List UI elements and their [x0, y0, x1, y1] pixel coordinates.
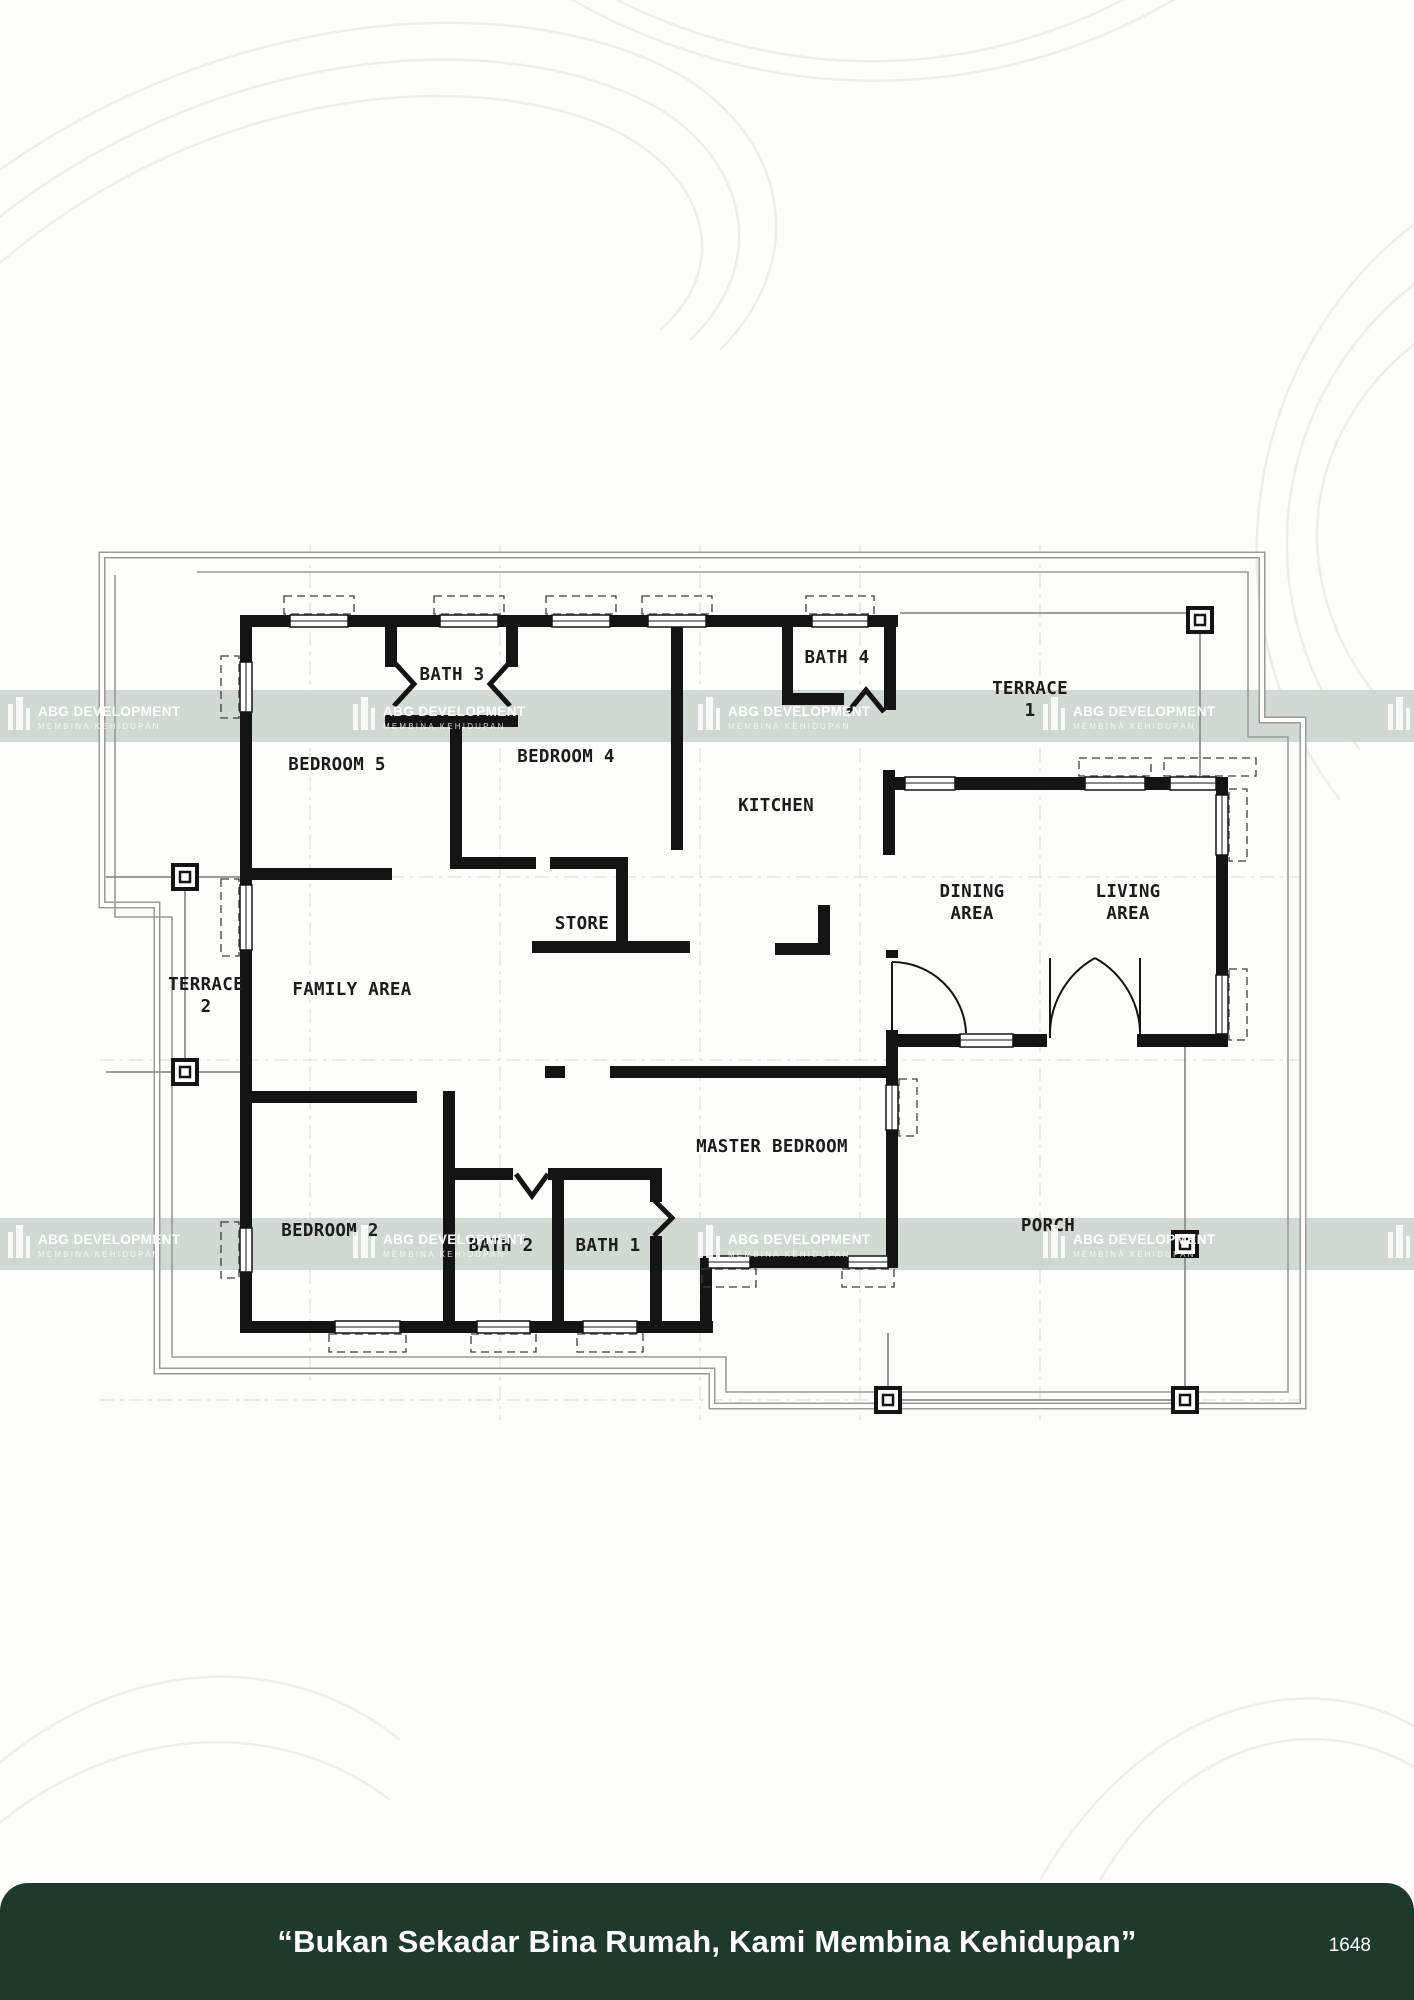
watermark-title: ABG DEVELOPMENT	[383, 704, 526, 719]
window-top-2	[440, 615, 498, 627]
room-label-bath-3: BATH 3	[419, 665, 484, 685]
watermark-subtitle: MEMBINA KEHIDUPAN	[383, 1250, 506, 1259]
watermark-title: ABG DEVELOPMENT	[38, 1232, 181, 1247]
column-terrace2-bottom	[173, 1060, 197, 1084]
window-bottom-1	[335, 1321, 400, 1333]
room-label-bedroom-4: BEDROOM 4	[517, 747, 615, 767]
footer-quote-bar: “Bukan Sekadar Bina Rumah, Kami Membina …	[0, 1883, 1414, 2000]
window-bottom-2	[477, 1321, 530, 1333]
room-label-bedroom-5: BEDROOM 5	[288, 755, 386, 775]
window-living-east-1	[1216, 795, 1228, 855]
door-master-bedroom	[892, 962, 966, 1033]
watermark-title: ABG DEVELOPMENT	[728, 704, 871, 719]
room-label-terrace-1: TERRACE	[992, 679, 1068, 699]
watermark-subtitle: MEMBINA KEHIDUPAN	[38, 722, 161, 731]
window-bottom-3	[583, 1321, 637, 1333]
floor-plan-drawing: BATH 3 BATH 4 TERRACE 1 BEDROOM 5 BEDROO…	[0, 0, 1414, 2000]
room-label-living: LIVING	[1095, 882, 1160, 902]
door-main-entrance	[1050, 958, 1140, 1038]
room-label-dining-2: AREA	[950, 904, 994, 924]
room-label-bath-4: BATH 4	[804, 648, 869, 668]
window-dining-north-2	[1085, 777, 1145, 790]
watermark-title: ABG DEVELOPMENT	[38, 704, 181, 719]
footer-page-code: 1648	[1329, 1935, 1371, 1957]
column-terrace1	[1188, 608, 1212, 632]
window-living-east-2	[1216, 975, 1228, 1034]
window-top-3	[552, 615, 610, 627]
window-left-3	[240, 1228, 252, 1272]
room-label-kitchen: KITCHEN	[738, 796, 814, 816]
window-left-2	[240, 885, 252, 950]
window-master-south-2	[848, 1256, 888, 1268]
footer-quote-text: “Bukan Sekadar Bina Rumah, Kami Membina …	[277, 1924, 1136, 1960]
room-label-terrace-2-num: 2	[201, 997, 212, 1017]
room-label-family-area: FAMILY AREA	[292, 980, 411, 1000]
room-label-bath-1: BATH 1	[575, 1236, 640, 1256]
window-left-1	[240, 662, 252, 712]
contour-pattern	[0, 0, 1414, 1880]
window-living-south	[960, 1034, 1013, 1047]
watermark-subtitle: MEMBINA KEHIDUPAN	[1073, 1250, 1196, 1259]
watermark-subtitle: MEMBINA KEHIDUPAN	[383, 722, 506, 731]
watermark-subtitle: MEMBINA KEHIDUPAN	[38, 1250, 161, 1259]
room-label-store: STORE	[555, 914, 609, 934]
window-top-4	[648, 615, 706, 627]
watermark-title: ABG DEVELOPMENT	[1073, 1232, 1216, 1247]
column-porch-br	[1173, 1388, 1197, 1412]
watermark-title: ABG DEVELOPMENT	[728, 1232, 871, 1247]
window-master-east	[886, 1085, 898, 1130]
room-label-terrace-2: TERRACE	[168, 975, 244, 995]
watermark-title: ABG DEVELOPMENT	[383, 1232, 526, 1247]
watermark-subtitle: MEMBINA KEHIDUPAN	[1073, 722, 1196, 731]
room-label-terrace-1-num: 1	[1025, 701, 1036, 721]
column-porch-bl	[876, 1388, 900, 1412]
door-bath2	[516, 1174, 548, 1196]
column-terrace2-top	[173, 865, 197, 889]
window-dining-north-3	[1170, 777, 1216, 790]
room-label-living-2: AREA	[1106, 904, 1150, 924]
room-label-dining: DINING	[939, 882, 1004, 902]
watermark-subtitle: MEMBINA KEHIDUPAN	[728, 722, 851, 731]
window-dining-north-1	[905, 777, 955, 790]
watermark-title: ABG DEVELOPMENT	[1073, 704, 1216, 719]
page-canvas: BATH 3 BATH 4 TERRACE 1 BEDROOM 5 BEDROO…	[0, 0, 1414, 2000]
window-top-5	[812, 615, 868, 627]
window-top-1	[290, 615, 348, 627]
watermark-subtitle: MEMBINA KEHIDUPAN	[728, 1250, 851, 1259]
room-label-master-bedroom: MASTER BEDROOM	[696, 1137, 848, 1157]
brochure-page: { "watermark": { "title": "ABG DEVELOPME…	[0, 0, 1414, 2000]
